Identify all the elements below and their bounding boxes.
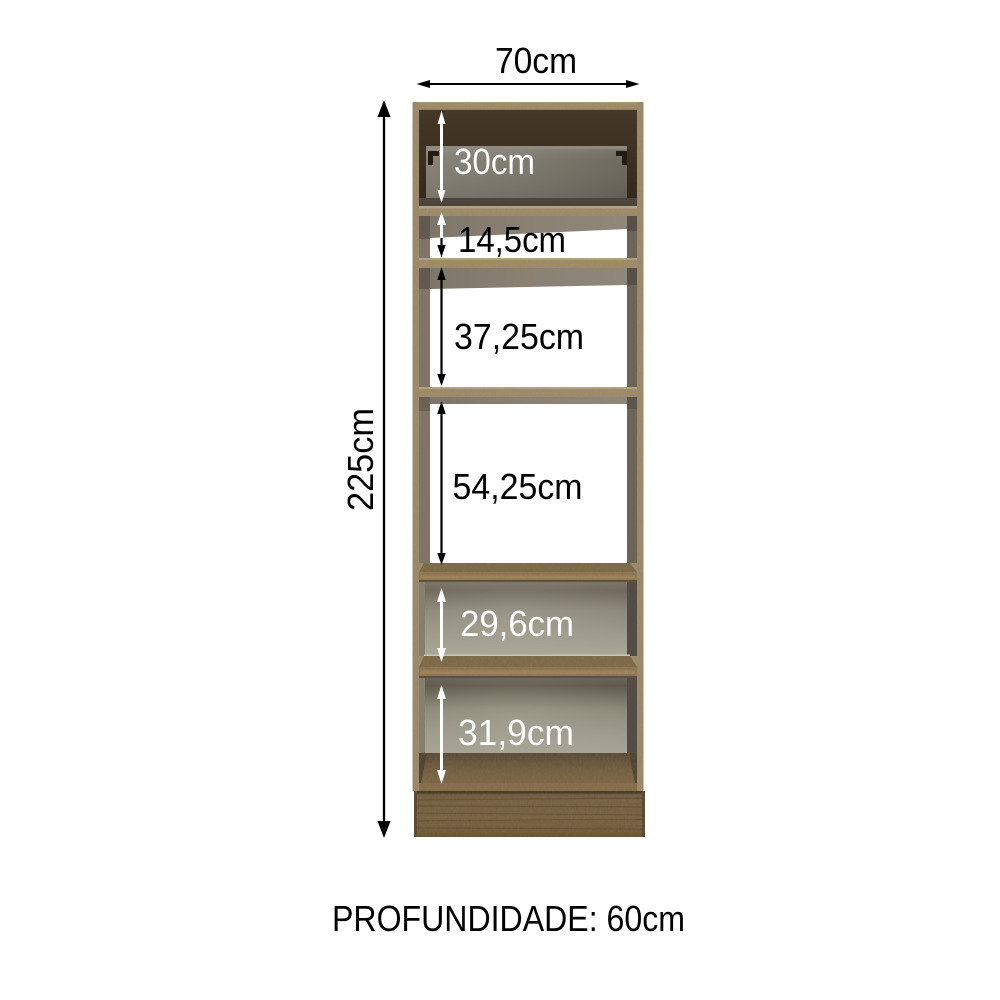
svg-text:30cm: 30cm (454, 141, 535, 182)
svg-text:31,9cm: 31,9cm (458, 712, 574, 753)
svg-text:70cm: 70cm (495, 40, 577, 81)
svg-text:14,5cm: 14,5cm (458, 219, 566, 260)
svg-text:37,25cm: 37,25cm (454, 316, 584, 357)
svg-text:PROFUNDIDADE: 60cm: PROFUNDIDADE: 60cm (332, 898, 685, 939)
svg-text:54,25cm: 54,25cm (453, 466, 583, 507)
svg-text:29,6cm: 29,6cm (460, 603, 574, 644)
svg-text:225cm: 225cm (340, 408, 381, 511)
